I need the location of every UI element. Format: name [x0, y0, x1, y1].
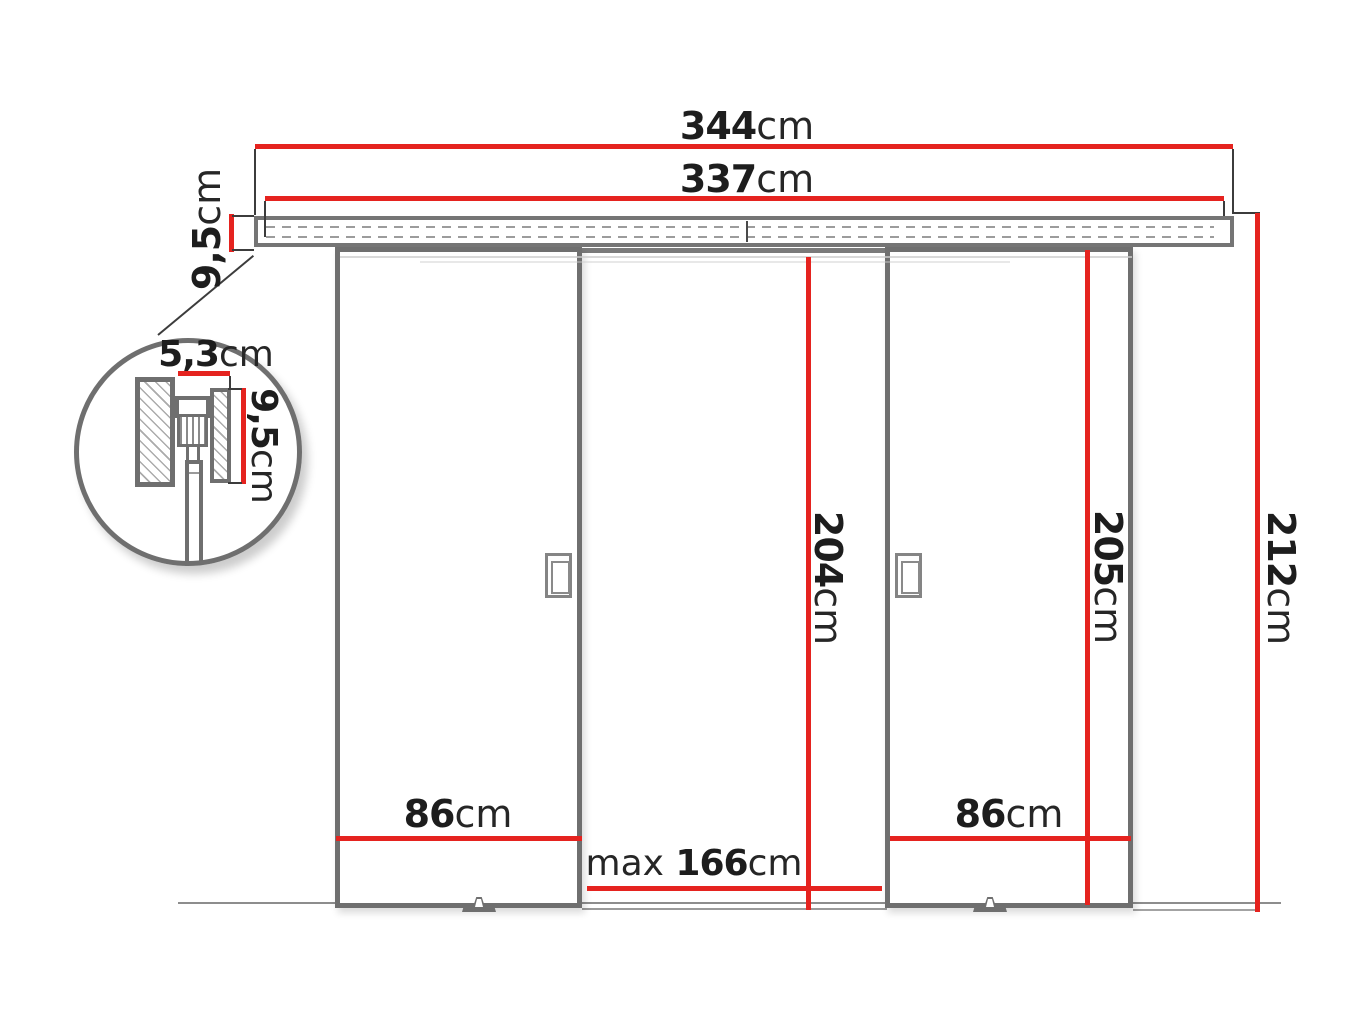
sliding-door-technical-diagram: 344cm 337cm 9,5cm 5,3cm 9,5cm 20 [0, 0, 1361, 1021]
left-door-handle-recess [551, 561, 570, 594]
dim-detail-tick-bottom [228, 482, 242, 484]
right-door-handle-recess [901, 561, 920, 594]
right-door-handle-icon [895, 553, 922, 598]
dim-label-max-opening: max 166cm [586, 846, 803, 882]
dim-344-ext-right [1232, 149, 1234, 213]
dim-label-passage-height: 204cm [809, 511, 847, 645]
rail-dashed-guide-lower [266, 236, 1214, 238]
rail-center-mark [746, 221, 748, 242]
detail-door-slab-cap-line [189, 472, 199, 474]
rail-shadow-stroke [340, 256, 1132, 258]
left-floor-guide-icon [462, 897, 496, 912]
dim-line-right-door-width [890, 836, 1131, 841]
detail-fascia-panel [210, 388, 231, 483]
floor-line-opening [582, 908, 887, 910]
rail-shadow-stroke-2 [420, 261, 1010, 263]
dim-337-ext-right [1223, 201, 1225, 216]
detail-roller-icon [177, 414, 208, 447]
dim-label-door-height: 205cm [1089, 510, 1127, 644]
rail-dashed-guide-upper [266, 226, 1214, 228]
dim-label-overall-width: 344cm [680, 107, 814, 145]
dim-label-left-door-width: 86cm [404, 795, 513, 833]
dim-label-rail-height: 9,5cm [188, 168, 226, 290]
dim-label-rail-length: 337cm [680, 160, 814, 198]
passage-opening-top-edge [582, 248, 887, 253]
detail-wall-bracket [135, 377, 175, 487]
dim-label-total-height: 212cm [1262, 511, 1300, 645]
dim-line-max-opening [587, 886, 882, 891]
dim-337-ext-left [264, 201, 266, 237]
dim-label-detail-height: 9,5cm [245, 388, 281, 504]
dim-344-ext-left [254, 149, 256, 215]
right-floor-guide-icon [973, 897, 1007, 912]
dim-label-detail-width: 5,3cm [158, 337, 274, 373]
dim-line-left-door-width [336, 836, 582, 841]
left-door-handle-icon [545, 553, 572, 598]
dim-rail-height-tick-top [232, 215, 254, 217]
dim-line-rail-height [229, 214, 234, 252]
floor-line-right [1133, 909, 1257, 911]
dim-label-right-door-width: 86cm [955, 795, 1064, 833]
dim-rail-height-tick-bottom [232, 249, 254, 251]
detail-door-slab [185, 460, 203, 566]
top-rail [254, 216, 1234, 247]
dim-detail-tick-top [228, 388, 242, 390]
